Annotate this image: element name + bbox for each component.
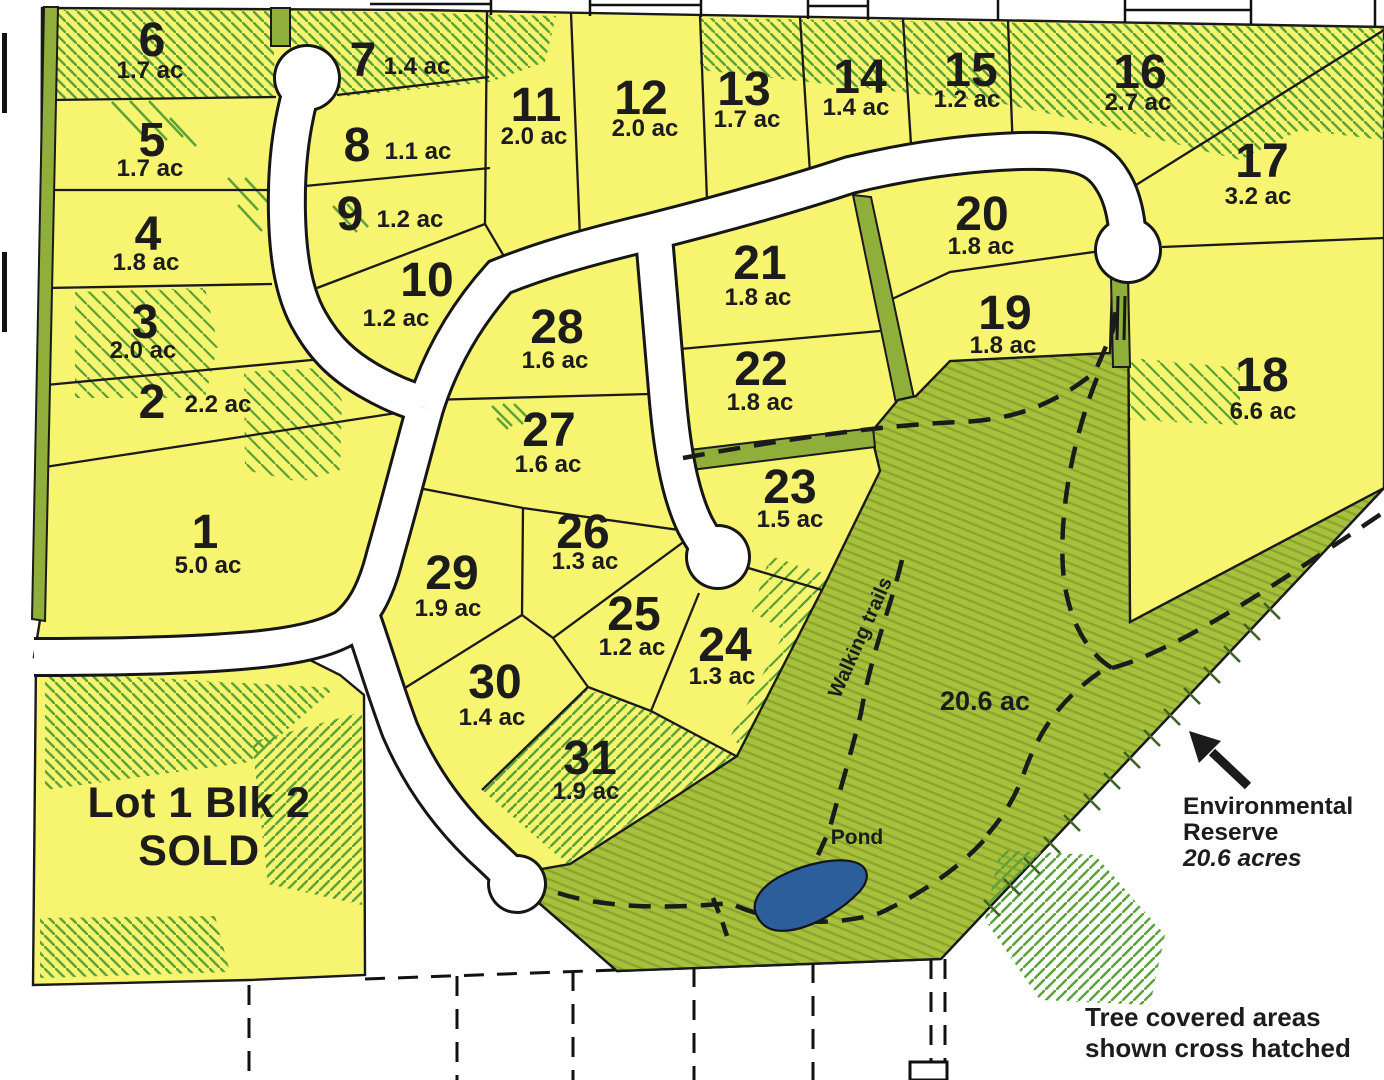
svg-text:1.8 ac: 1.8 ac bbox=[113, 249, 180, 276]
svg-text:1.8 ac: 1.8 ac bbox=[727, 389, 794, 416]
svg-text:1.8 ac: 1.8 ac bbox=[970, 332, 1037, 359]
svg-text:Environmental: Environmental bbox=[1183, 793, 1353, 820]
svg-text:5.0 ac: 5.0 ac bbox=[175, 552, 242, 579]
svg-text:1.6 ac: 1.6 ac bbox=[522, 347, 589, 374]
svg-text:8: 8 bbox=[344, 119, 371, 172]
svg-text:2: 2 bbox=[139, 376, 166, 429]
svg-text:3.2 ac: 3.2 ac bbox=[1225, 183, 1292, 210]
svg-text:1.7 ac: 1.7 ac bbox=[714, 106, 781, 133]
svg-text:Tree covered areas: Tree covered areas bbox=[1085, 1002, 1321, 1032]
svg-text:10: 10 bbox=[400, 254, 453, 307]
svg-text:29: 29 bbox=[425, 547, 478, 600]
svg-text:1.2 ac: 1.2 ac bbox=[377, 206, 444, 233]
svg-text:Pond: Pond bbox=[831, 826, 884, 849]
svg-text:21: 21 bbox=[733, 237, 786, 290]
svg-text:Reserve: Reserve bbox=[1183, 819, 1278, 846]
svg-text:1.4 ac: 1.4 ac bbox=[459, 704, 526, 731]
svg-text:Lot 1 Blk 2: Lot 1 Blk 2 bbox=[88, 779, 311, 827]
svg-text:1.2 ac: 1.2 ac bbox=[363, 305, 430, 332]
svg-text:shown cross hatched: shown cross hatched bbox=[1085, 1033, 1351, 1063]
svg-text:2.7 ac: 2.7 ac bbox=[1105, 89, 1172, 116]
svg-text:7: 7 bbox=[350, 34, 377, 87]
svg-text:2.2 ac: 2.2 ac bbox=[185, 391, 252, 418]
svg-text:1.2 ac: 1.2 ac bbox=[934, 86, 1001, 113]
svg-text:20.6 acres: 20.6 acres bbox=[1182, 845, 1302, 872]
svg-text:2.0 ac: 2.0 ac bbox=[110, 337, 177, 364]
svg-text:1.4 ac: 1.4 ac bbox=[384, 53, 451, 80]
svg-text:18: 18 bbox=[1235, 349, 1288, 402]
svg-text:1.8 ac: 1.8 ac bbox=[725, 284, 792, 311]
svg-text:1.6 ac: 1.6 ac bbox=[515, 451, 582, 478]
svg-text:1.9 ac: 1.9 ac bbox=[553, 778, 620, 805]
svg-text:1.9 ac: 1.9 ac bbox=[415, 595, 482, 622]
svg-text:2.0 ac: 2.0 ac bbox=[501, 123, 568, 150]
svg-text:1.5 ac: 1.5 ac bbox=[757, 506, 824, 533]
svg-text:1.1 ac: 1.1 ac bbox=[385, 138, 452, 165]
svg-text:30: 30 bbox=[468, 656, 521, 709]
svg-text:1.7 ac: 1.7 ac bbox=[117, 155, 184, 182]
svg-text:1.3 ac: 1.3 ac bbox=[552, 548, 619, 575]
svg-text:2.0 ac: 2.0 ac bbox=[612, 115, 679, 142]
svg-text:1.3 ac: 1.3 ac bbox=[689, 663, 756, 690]
svg-text:1.8 ac: 1.8 ac bbox=[948, 233, 1015, 260]
svg-text:1.2 ac: 1.2 ac bbox=[599, 634, 666, 661]
svg-text:17: 17 bbox=[1235, 135, 1288, 188]
svg-text:20.6 ac: 20.6 ac bbox=[940, 686, 1030, 716]
svg-text:27: 27 bbox=[522, 404, 575, 457]
svg-text:6.6 ac: 6.6 ac bbox=[1230, 398, 1297, 425]
svg-text:SOLD: SOLD bbox=[138, 827, 259, 875]
svg-text:9: 9 bbox=[337, 188, 364, 241]
svg-text:1.7 ac: 1.7 ac bbox=[117, 57, 184, 84]
svg-text:1.4 ac: 1.4 ac bbox=[823, 94, 890, 121]
